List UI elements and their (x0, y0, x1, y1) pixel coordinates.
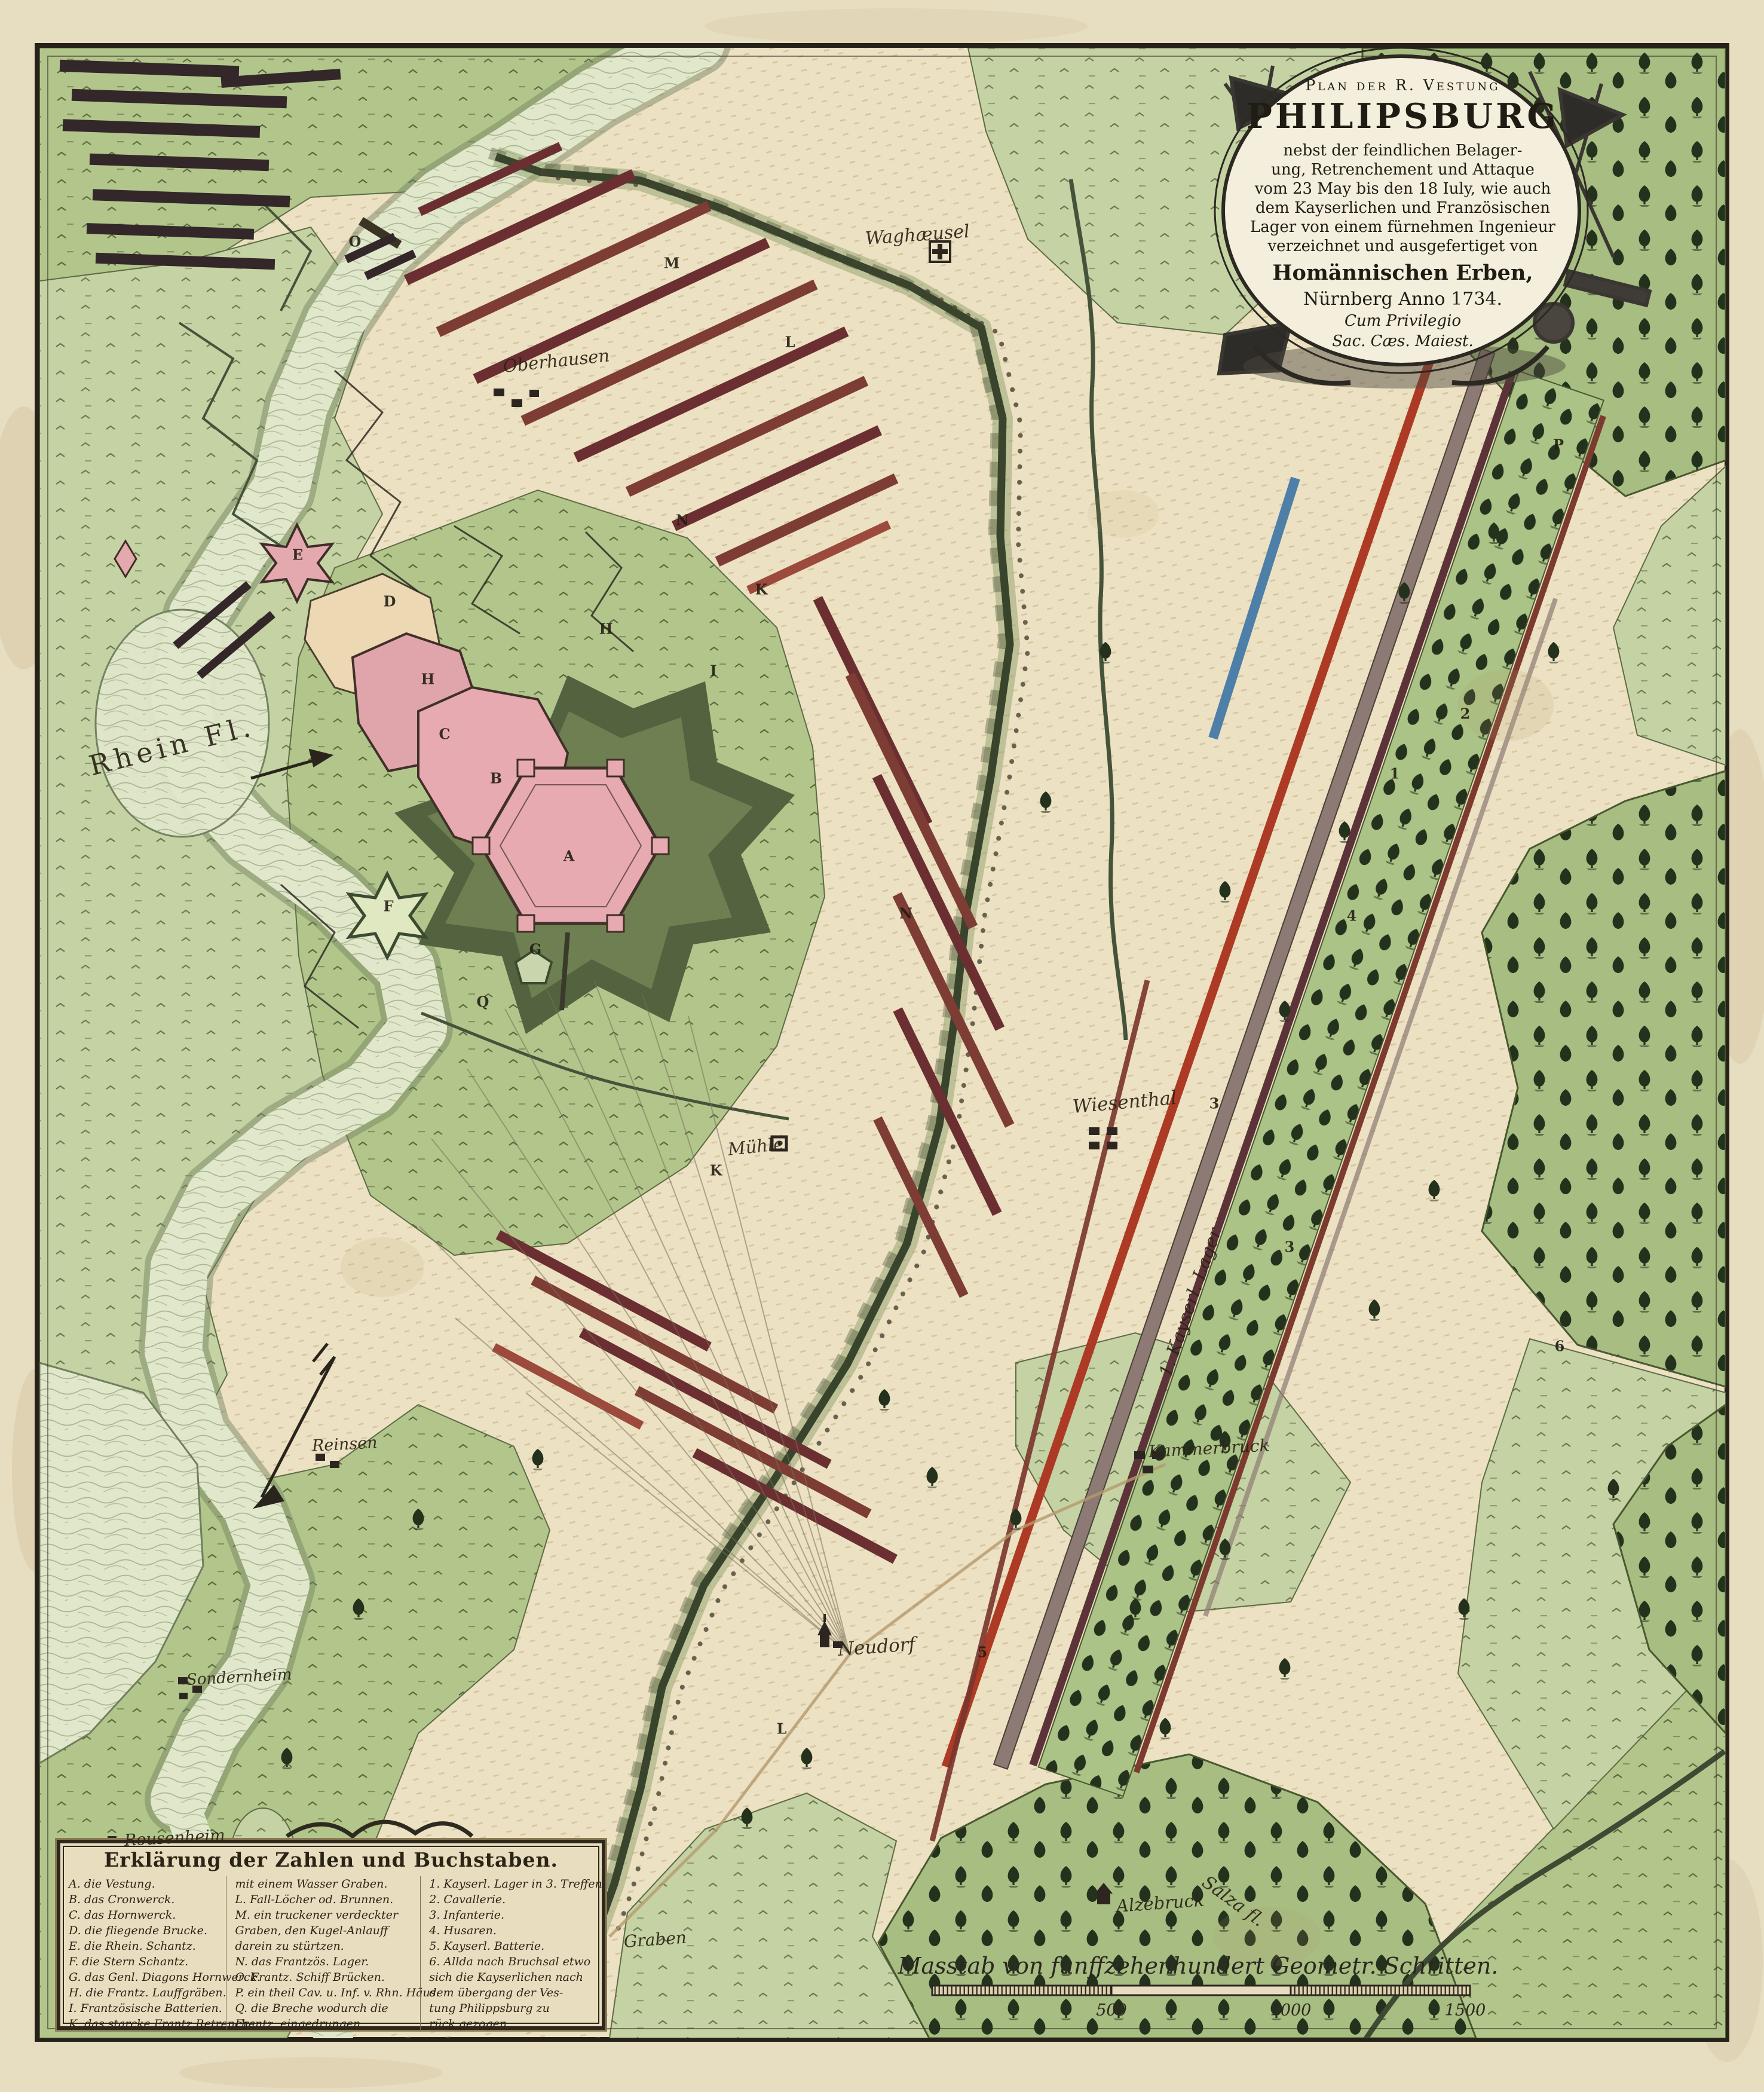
scale-tick-1000: 1000 (1270, 2001, 1312, 2020)
privilege-line: Sac. Cæs. Maiest. (1234, 332, 1572, 350)
legend-entry: C. das Hornwerck. (69, 1907, 226, 1923)
scale-bar-label: Masstab von funffzehenhundert Geometr. S… (898, 1953, 1499, 1979)
map-marker: 1 (1390, 765, 1400, 782)
legend-entry: N. das Frantzös. Lager. (235, 1954, 420, 1969)
cartouche-line: dem Kayserlichen und Französischen (1234, 198, 1572, 218)
map-marker: P (1553, 436, 1564, 454)
privilege-line: Cum Privilegio (1234, 312, 1572, 330)
legend-entry: E. die Rhein. Schantz. (69, 1938, 226, 1954)
map-marker: B (490, 770, 502, 787)
map-marker: G (529, 941, 542, 958)
scale-tick-1500: 1500 (1445, 2001, 1486, 2020)
legend-entry: H. die Frantz. Lauffgräben. (69, 1985, 226, 2001)
cartouche-line: ung, Retrenchement und Attaque (1234, 160, 1572, 179)
legend-entry: A. die Vestung. (69, 1876, 226, 1892)
legend-entry: P. ein theil Cav. u. Inf. v. Rhn. Häus. (235, 1985, 420, 2001)
legend-title: Erklärung der Zahlen und Buchstaben. (60, 1848, 602, 1871)
map-marker: L (777, 1720, 787, 1738)
legend-column-1: A. die Vestung. B. das Cronwerck. C. das… (69, 1876, 226, 2032)
legend-entry: rück gezogen. (429, 2016, 593, 2032)
map-title: PHILIPSBURG (1234, 96, 1572, 136)
legend-column-2: mit einem Wasser Graben. L. Fall-Löcher … (226, 1876, 420, 2032)
map-marker: 3 (1285, 1238, 1295, 1256)
publisher: Homännischen Erben, (1234, 261, 1572, 285)
legend-entry: B. das Cronwerck. (69, 1892, 226, 1907)
cartouche-line: vom 23 May bis den 18 Iuly, wie auch (1234, 179, 1572, 198)
legend-entry: 1. Kayserl. Lager in 3. Treffen. (429, 1876, 593, 1892)
cartouche-line: verzeichnet und ausgefertiget von (1234, 237, 1572, 256)
map-marker: I (710, 662, 716, 680)
map-marker: A (563, 848, 575, 865)
legend-entry: O. Frantz. Schiff Brücken. (235, 1969, 420, 1985)
map-marker: D (384, 593, 396, 610)
legend-entry: L. Fall-Löcher od. Brunnen. (235, 1892, 420, 1907)
map-marker: 4 (1347, 907, 1357, 925)
legend-entry: K. das starcke Frantz Retrenche. (69, 2016, 226, 2032)
map-marker: K (710, 1162, 722, 1179)
scale-tick-500: 500 (1096, 2001, 1127, 2020)
legend-entry: G. das Genl. Diagons Hornwerck. (69, 1969, 226, 1985)
cartouche-line: Lager von einem fürnehmen Ingenieur (1234, 218, 1572, 237)
map-marker: L (785, 334, 795, 351)
map-marker: F (383, 898, 393, 915)
map-marker: 6 (1555, 1338, 1565, 1355)
legend-entry: F. die Stern Schantz. (69, 1954, 226, 1969)
legend-entry: D. die fliegende Brucke. (69, 1923, 226, 1938)
legend-box: Erklärung der Zahlen und Buchstaben. A. … (57, 1840, 605, 2030)
cartouche-line: nebst der feindlichen Belager- (1234, 141, 1572, 160)
imprint: Nürnberg Anno 1734. (1234, 289, 1572, 310)
legend-entry: Graben, den Kugel-Anlauff (235, 1923, 420, 1938)
map-marker: N (676, 512, 689, 529)
map-marker: O (349, 233, 362, 250)
legend-entry: Q. die Breche wodurch die (235, 2001, 420, 2016)
legend-entry: I. Frantzösische Batterien. (69, 2001, 226, 2016)
legend-entry: mit einem Wasser Graben. (235, 1876, 420, 1892)
legend-entry: Frantz. eingedrungen. (235, 2016, 420, 2032)
legend-entry: 4. Husaren. (429, 1923, 593, 1938)
legend-entry: 2. Cavallerie. (429, 1892, 593, 1907)
map-marker: N (899, 905, 912, 922)
antique-siege-map-philipsburg: Masstab von funffzehenhundert Geometr. S… (0, 0, 1764, 2092)
legend-entry: darein zu stürtzen. (235, 1938, 420, 1954)
legend-entry: M. ein truckener verdeckter (235, 1907, 420, 1923)
map-marker: 3 (1209, 1095, 1220, 1112)
legend-entry: tung Philippsburg zu (429, 2001, 593, 2016)
legend-entry: 6. Allda nach Bruchsal etwo (429, 1954, 593, 1969)
legend-entry: sich die Kayserlichen nach (429, 1969, 593, 1985)
map-marker: H (599, 620, 613, 638)
cartouche-kicker: Plan der R. Vestung (1234, 77, 1572, 94)
map-marker: K (755, 581, 768, 598)
label-reinsen: Reinsen (311, 1433, 378, 1455)
cartouche-text: Plan der R. Vestung PHILIPSBURG nebst de… (1234, 77, 1572, 350)
map-marker: H (421, 671, 435, 688)
legend-entry: 3. Infanterie. (429, 1907, 593, 1923)
map-marker: 2 (1460, 705, 1471, 723)
map-marker: C (439, 726, 450, 743)
legend-column-3: 1. Kayserl. Lager in 3. Treffen. 2. Cava… (420, 1876, 593, 2032)
map-marker: Q (477, 993, 489, 1011)
legend-entry: 5. Kayserl. Batterie. (429, 1938, 593, 1954)
map-marker: E (292, 546, 303, 564)
legend-entry: dem übergang der Ves- (429, 1985, 593, 2001)
map-marker: M (664, 255, 680, 272)
map-marker: 5 (978, 1644, 988, 1661)
